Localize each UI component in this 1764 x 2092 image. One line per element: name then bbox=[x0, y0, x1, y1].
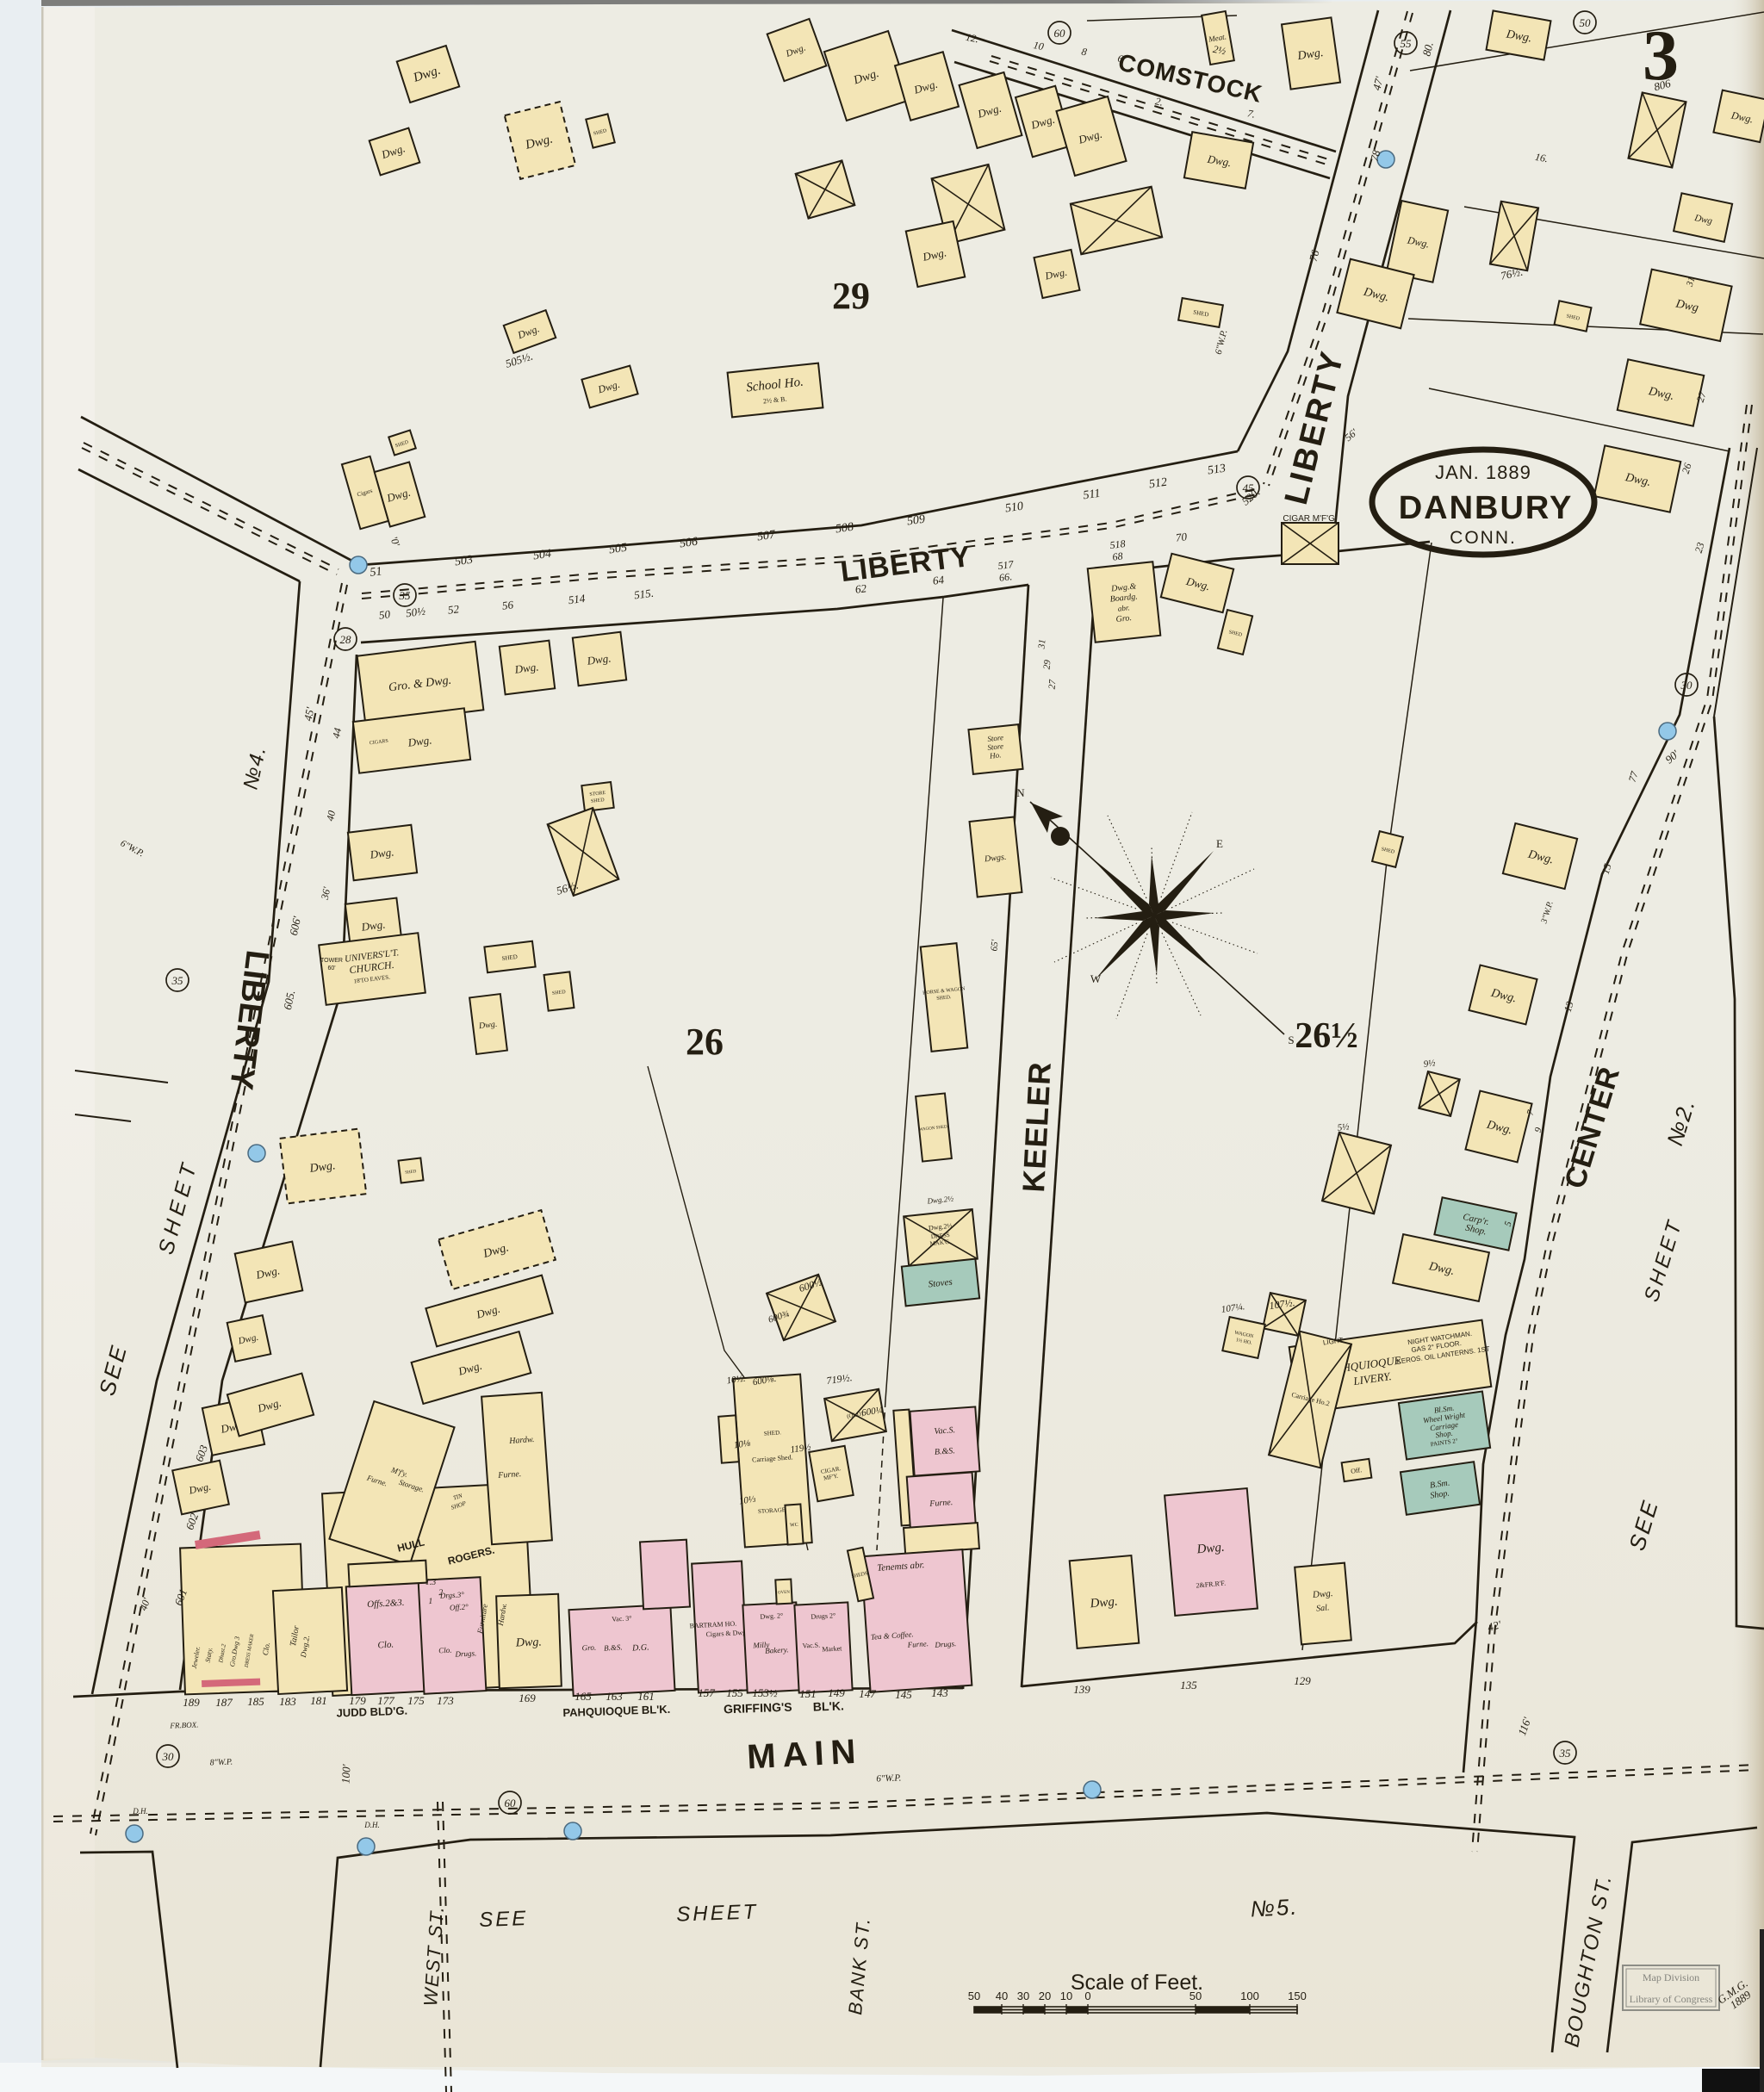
svg-text:510: 510 bbox=[1004, 500, 1024, 516]
svg-text:35: 35 bbox=[1559, 1747, 1572, 1760]
svg-text:JUDD BLD'G.: JUDD BLD'G. bbox=[336, 1704, 407, 1720]
svg-text:181: 181 bbox=[310, 1694, 327, 1707]
svg-text:50½: 50½ bbox=[405, 605, 426, 620]
svg-text:503: 503 bbox=[454, 554, 474, 569]
svg-text:1: 1 bbox=[428, 1597, 433, 1606]
svg-text:W: W bbox=[1090, 972, 1102, 985]
svg-text:BL'K.: BL'K. bbox=[813, 1698, 845, 1713]
svg-text:abr.: abr. bbox=[1117, 603, 1130, 612]
svg-text:Vac.S.: Vac.S. bbox=[802, 1641, 820, 1649]
svg-text:173: 173 bbox=[437, 1694, 454, 1707]
svg-text:6"W.P.: 6"W.P. bbox=[876, 1772, 901, 1784]
svg-text:B.&S.: B.&S. bbox=[604, 1642, 623, 1652]
svg-text:SHED.: SHED. bbox=[764, 1429, 782, 1437]
svg-text:50: 50 bbox=[378, 607, 391, 622]
svg-text:100: 100 bbox=[1240, 1990, 1259, 2002]
svg-text:D.H.: D.H. bbox=[363, 1821, 380, 1829]
svg-text:52: 52 bbox=[447, 602, 460, 617]
svg-text:509: 509 bbox=[906, 513, 926, 529]
svg-text:100': 100' bbox=[339, 1764, 352, 1784]
svg-text:163: 163 bbox=[606, 1690, 623, 1703]
svg-text:JAN. 1889: JAN. 1889 bbox=[1435, 462, 1531, 483]
svg-text:20: 20 bbox=[1039, 1990, 1051, 2002]
svg-text:Gro.: Gro. bbox=[581, 1643, 596, 1653]
svg-text:149: 149 bbox=[828, 1686, 845, 1699]
svg-text:60: 60 bbox=[505, 1797, 517, 1810]
svg-text:135: 135 bbox=[1180, 1679, 1197, 1692]
svg-text:35: 35 bbox=[399, 589, 412, 602]
svg-text:Bakery.: Bakery. bbox=[765, 1645, 789, 1654]
svg-text:FR.BOX.: FR.BOX. bbox=[169, 1720, 198, 1729]
svg-text:1.3: 1.3 bbox=[425, 1578, 437, 1587]
svg-text:139: 139 bbox=[1073, 1683, 1090, 1696]
svg-text:153½: 153½ bbox=[752, 1686, 778, 1699]
svg-text:Dwg.: Dwg. bbox=[1089, 1595, 1118, 1611]
svg-text:Dwg.: Dwg. bbox=[1196, 1541, 1225, 1557]
svg-text:505: 505 bbox=[608, 542, 628, 557]
svg-text:0: 0 bbox=[1084, 1990, 1090, 2002]
svg-text:60: 60 bbox=[1054, 27, 1066, 40]
svg-text:157: 157 bbox=[698, 1686, 715, 1699]
svg-text:Dwg.: Dwg. bbox=[1311, 1588, 1332, 1600]
svg-text:508: 508 bbox=[835, 521, 854, 537]
svg-text:2: 2 bbox=[438, 1588, 444, 1598]
svg-text:Drugs.: Drugs. bbox=[934, 1639, 956, 1649]
svg-text:Off.2°: Off.2° bbox=[450, 1602, 469, 1611]
svg-text:169: 169 bbox=[519, 1692, 536, 1704]
svg-text:29: 29 bbox=[832, 275, 870, 317]
svg-text:189: 189 bbox=[183, 1696, 200, 1709]
svg-text:GRIFFING'S: GRIFFING'S bbox=[724, 1700, 792, 1716]
svg-text:16.: 16. bbox=[1534, 151, 1549, 165]
svg-text:50: 50 bbox=[1580, 16, 1592, 29]
svg-text:SEE: SEE bbox=[479, 1907, 529, 1932]
svg-text:507: 507 bbox=[756, 529, 777, 544]
svg-text:183: 183 bbox=[279, 1695, 296, 1708]
svg-text:515.: 515. bbox=[633, 587, 654, 602]
svg-text:Clo.: Clo. bbox=[438, 1646, 452, 1655]
svg-text:S: S bbox=[1288, 1034, 1294, 1046]
svg-text:Drugs.: Drugs. bbox=[454, 1648, 476, 1658]
svg-text:56: 56 bbox=[501, 598, 514, 612]
svg-text:150: 150 bbox=[1288, 1990, 1307, 2002]
svg-text:187: 187 bbox=[215, 1696, 233, 1709]
svg-text:129: 129 bbox=[1294, 1674, 1311, 1687]
svg-text:Clo.: Clo. bbox=[377, 1640, 394, 1651]
svg-text:506: 506 bbox=[679, 536, 699, 551]
svg-text:185: 185 bbox=[247, 1695, 264, 1708]
svg-text:Hardw.: Hardw. bbox=[508, 1435, 535, 1446]
svg-text:Sal.: Sal. bbox=[1316, 1603, 1330, 1613]
svg-text:Vac.S.: Vac.S. bbox=[934, 1425, 955, 1437]
svg-text:Furne.: Furne. bbox=[906, 1639, 929, 1649]
svg-text:147: 147 bbox=[859, 1687, 876, 1700]
svg-text:143: 143 bbox=[931, 1686, 948, 1699]
svg-text:Offs.2&3.: Offs.2&3. bbox=[367, 1598, 405, 1610]
svg-text:Drugs 2°: Drugs 2° bbox=[811, 1611, 835, 1620]
svg-text:Dwg. 2°: Dwg. 2° bbox=[760, 1611, 783, 1620]
svg-text:KEELER: KEELER bbox=[1016, 1060, 1058, 1193]
svg-text:66.: 66. bbox=[998, 570, 1013, 584]
svg-text:30: 30 bbox=[1680, 679, 1693, 692]
svg-text:10: 10 bbox=[1060, 1990, 1072, 2002]
svg-text:28: 28 bbox=[340, 633, 352, 646]
svg-text:511: 511 bbox=[1083, 487, 1102, 503]
svg-text:504: 504 bbox=[532, 548, 552, 563]
svg-text:2½: 2½ bbox=[1212, 43, 1227, 58]
svg-text:D.G.: D.G. bbox=[631, 1643, 649, 1654]
svg-text:518: 518 bbox=[1109, 537, 1127, 551]
svg-text:MAIN: MAIN bbox=[746, 1733, 863, 1777]
svg-text:512: 512 bbox=[1148, 476, 1168, 492]
svg-text:30: 30 bbox=[162, 1750, 175, 1763]
svg-text:№5.: №5. bbox=[1250, 1894, 1299, 1922]
svg-text:40: 40 bbox=[996, 1990, 1008, 2002]
svg-text:Gro.: Gro. bbox=[1115, 613, 1132, 624]
svg-text:27: 27 bbox=[1047, 679, 1059, 690]
svg-text:145: 145 bbox=[895, 1688, 912, 1701]
svg-text:TOWER: TOWER bbox=[320, 958, 343, 964]
svg-text:165: 165 bbox=[575, 1690, 592, 1703]
svg-text:B.&S.: B.&S. bbox=[935, 1446, 956, 1457]
svg-text:OVEN: OVEN bbox=[778, 1591, 791, 1596]
svg-text:DANBURY: DANBURY bbox=[1399, 490, 1574, 526]
svg-text:513: 513 bbox=[1207, 462, 1227, 478]
svg-text:51: 51 bbox=[370, 565, 383, 580]
svg-text:Market: Market bbox=[822, 1644, 842, 1653]
svg-text:514: 514 bbox=[568, 592, 587, 606]
svg-text:64: 64 bbox=[932, 573, 945, 587]
svg-text:Library of Congress: Library of Congress bbox=[1630, 1993, 1713, 2005]
svg-text:Vac. 3°: Vac. 3° bbox=[612, 1614, 632, 1623]
svg-text:50: 50 bbox=[1189, 1990, 1202, 2002]
svg-text:26: 26 bbox=[686, 1021, 724, 1063]
svg-text:Furne.: Furne. bbox=[497, 1469, 522, 1481]
svg-text:Furne.: Furne. bbox=[929, 1498, 953, 1509]
svg-text:D.H.: D.H. bbox=[132, 1807, 148, 1816]
svg-text:179: 179 bbox=[349, 1694, 366, 1707]
svg-text:151: 151 bbox=[799, 1687, 817, 1700]
svg-text:155: 155 bbox=[726, 1686, 743, 1699]
svg-text:SHEET: SHEET bbox=[676, 1900, 759, 1926]
svg-text:E: E bbox=[1216, 837, 1223, 850]
svg-text:177: 177 bbox=[377, 1694, 394, 1707]
svg-text:31: 31 bbox=[1036, 639, 1047, 650]
svg-text:N: N bbox=[1016, 786, 1025, 799]
svg-text:70: 70 bbox=[1175, 530, 1188, 544]
svg-text:CONN.: CONN. bbox=[1450, 528, 1517, 548]
svg-text:68: 68 bbox=[1112, 549, 1124, 562]
svg-text:62: 62 bbox=[854, 581, 867, 596]
svg-text:Dwg.: Dwg. bbox=[515, 1636, 542, 1649]
svg-text:175: 175 bbox=[407, 1694, 425, 1707]
svg-text:65': 65' bbox=[989, 939, 1000, 952]
svg-text:9½: 9½ bbox=[1423, 1058, 1436, 1070]
svg-text:161: 161 bbox=[637, 1690, 655, 1703]
svg-text:50: 50 bbox=[968, 1990, 980, 2002]
svg-text:WC: WC bbox=[790, 1523, 798, 1529]
svg-text:Off.: Off. bbox=[1351, 1466, 1363, 1475]
svg-text:CIGAR M'F'G.: CIGAR M'F'G. bbox=[1283, 514, 1337, 524]
svg-text:5½: 5½ bbox=[1337, 1121, 1350, 1133]
svg-text:29: 29 bbox=[1042, 659, 1053, 670]
svg-text:30: 30 bbox=[1017, 1990, 1029, 2002]
svg-text:35: 35 bbox=[171, 974, 184, 987]
svg-text:60': 60' bbox=[327, 965, 335, 972]
svg-text:Map Division: Map Division bbox=[1643, 1971, 1699, 1983]
svg-text:12.: 12. bbox=[965, 31, 979, 46]
svg-text:517: 517 bbox=[997, 558, 1016, 572]
svg-text:8"W.P.: 8"W.P. bbox=[210, 1758, 233, 1768]
svg-text:55: 55 bbox=[1401, 37, 1413, 50]
svg-text:Ho.: Ho. bbox=[989, 750, 1002, 760]
svg-text:26½: 26½ bbox=[1295, 1016, 1358, 1056]
